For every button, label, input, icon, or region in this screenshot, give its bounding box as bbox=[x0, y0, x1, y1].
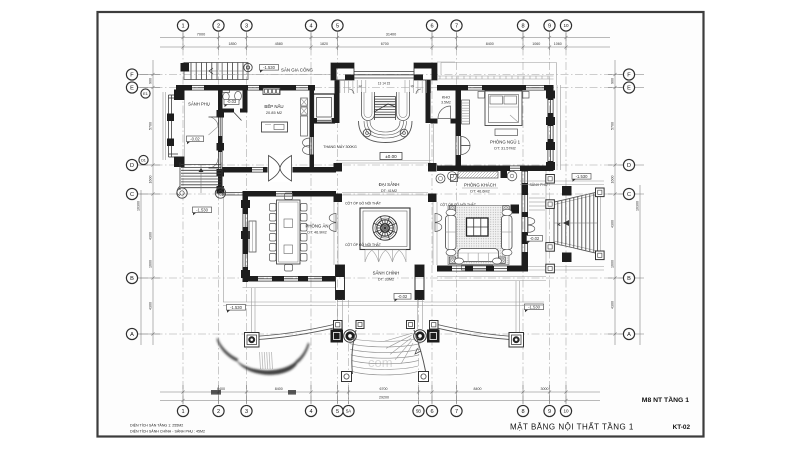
svg-text:PHÒNG NGỦ 1: PHÒNG NGỦ 1 bbox=[490, 140, 521, 145]
svg-text:1850: 1850 bbox=[229, 42, 237, 46]
svg-text:PHÒNG ĂN: PHÒNG ĂN bbox=[306, 224, 329, 229]
svg-text:3.5M2: 3.5M2 bbox=[441, 101, 451, 105]
svg-text:900: 900 bbox=[610, 78, 614, 84]
svg-text:1820: 1820 bbox=[320, 42, 328, 46]
svg-text:8: 8 bbox=[521, 409, 524, 415]
svg-text:1: 1 bbox=[181, 24, 184, 30]
svg-text:6700: 6700 bbox=[381, 42, 389, 46]
svg-text:B: B bbox=[627, 276, 631, 282]
svg-text:12: 12 bbox=[358, 84, 362, 88]
svg-text:DT: 31.57M2: DT: 31.57M2 bbox=[494, 147, 516, 151]
svg-text:4300: 4300 bbox=[610, 220, 614, 228]
svg-text:±0.00: ±0.00 bbox=[385, 154, 397, 159]
svg-text:-1.530: -1.530 bbox=[528, 304, 541, 309]
svg-text:MẶT BẰNG NỘI THẤT TẦNG 1: MẶT BẰNG NỘI THẤT TẦNG 1 bbox=[510, 422, 634, 432]
svg-text:D: D bbox=[130, 163, 134, 169]
svg-text:D: D bbox=[627, 163, 631, 169]
svg-text:900: 900 bbox=[148, 78, 152, 84]
svg-text:16300: 16300 bbox=[635, 201, 639, 211]
svg-text:B: B bbox=[130, 276, 134, 282]
svg-text:16: 16 bbox=[410, 84, 414, 88]
svg-text:SẢNH CHÍNH: SẢNH CHÍNH bbox=[373, 271, 400, 276]
svg-text:-0.02: -0.02 bbox=[398, 294, 408, 299]
svg-text:KT-02: KT-02 bbox=[673, 424, 691, 431]
svg-text:13 14 15: 13 14 15 bbox=[378, 82, 391, 86]
svg-text:7: 7 bbox=[455, 409, 458, 415]
svg-text:ĐẠI SẢNH: ĐẠI SẢNH bbox=[379, 182, 400, 187]
svg-text:DT: 46.9M2: DT: 46.9M2 bbox=[307, 231, 326, 235]
svg-text:3: 3 bbox=[245, 24, 248, 30]
svg-text:-1.530: -1.530 bbox=[230, 305, 243, 310]
svg-text:6: 6 bbox=[430, 24, 433, 30]
svg-text:1600: 1600 bbox=[610, 176, 614, 184]
svg-text:4300: 4300 bbox=[148, 302, 152, 310]
svg-text:DT: 46.6M2: DT: 46.6M2 bbox=[470, 190, 489, 194]
svg-text:-1.530: -1.530 bbox=[263, 65, 276, 70]
svg-text:K: K bbox=[557, 222, 561, 228]
svg-text:10: 10 bbox=[563, 23, 569, 28]
svg-text:F: F bbox=[130, 73, 134, 79]
svg-text:THANG MÁY 300KG: THANG MÁY 300KG bbox=[323, 145, 357, 149]
svg-text:5: 5 bbox=[336, 409, 339, 415]
svg-text:com: com bbox=[368, 355, 393, 370]
svg-text:5700: 5700 bbox=[148, 122, 152, 130]
svg-text:20.85 M2: 20.85 M2 bbox=[266, 110, 282, 115]
svg-text:C: C bbox=[130, 192, 134, 198]
svg-text:1600: 1600 bbox=[610, 260, 614, 268]
svg-text:31400: 31400 bbox=[386, 33, 397, 37]
svg-text:SẢNH PHỤ: SẢNH PHỤ bbox=[188, 102, 210, 107]
svg-text:6: 6 bbox=[430, 409, 433, 415]
svg-text:CỘT ỐP GỖ NỘI THẤT: CỘT ỐP GỖ NỘI THẤT bbox=[345, 201, 381, 206]
svg-text:8400: 8400 bbox=[486, 42, 494, 46]
svg-text:A: A bbox=[627, 332, 631, 338]
svg-text:7000: 7000 bbox=[197, 33, 205, 37]
svg-text:KHO: KHO bbox=[442, 96, 450, 100]
svg-text:5: 5 bbox=[336, 24, 339, 30]
svg-text:F: F bbox=[627, 73, 631, 79]
svg-text:E1: E1 bbox=[143, 92, 148, 96]
svg-text:PHÒNG KHÁCH: PHÒNG KHÁCH bbox=[464, 183, 496, 188]
svg-text:-0.03: -0.03 bbox=[227, 99, 237, 104]
svg-text:1600: 1600 bbox=[148, 260, 152, 268]
svg-text:9: 9 bbox=[548, 24, 551, 30]
svg-text:E: E bbox=[130, 86, 134, 92]
svg-text:16300: 16300 bbox=[136, 201, 140, 211]
svg-text:4300: 4300 bbox=[610, 301, 614, 309]
svg-text:D1: D1 bbox=[141, 158, 146, 162]
svg-text:-0.02: -0.02 bbox=[530, 236, 540, 241]
svg-text:4300: 4300 bbox=[148, 232, 152, 240]
svg-text:5B: 5B bbox=[416, 409, 421, 414]
svg-text:-1.530: -1.530 bbox=[196, 207, 209, 212]
svg-text:4: 4 bbox=[309, 409, 312, 415]
svg-text:-0.02: -0.02 bbox=[190, 136, 200, 141]
svg-text:2: 2 bbox=[217, 24, 220, 30]
svg-text:-1.530: -1.530 bbox=[576, 174, 589, 179]
svg-text:2: 2 bbox=[217, 409, 220, 415]
svg-text:8: 8 bbox=[521, 24, 524, 30]
svg-text:4: 4 bbox=[309, 24, 312, 30]
svg-text:1060: 1060 bbox=[532, 42, 540, 46]
svg-text:9: 9 bbox=[548, 409, 551, 415]
svg-text:BẾP NẤU: BẾP NẤU bbox=[264, 104, 283, 109]
svg-text:29200: 29200 bbox=[379, 396, 389, 400]
svg-text:1: 1 bbox=[181, 409, 184, 415]
svg-text:3000: 3000 bbox=[541, 387, 549, 391]
svg-text:E: E bbox=[627, 86, 631, 92]
svg-text:8400: 8400 bbox=[474, 387, 482, 391]
svg-text:SÂN GIA CÔNG: SÂN GIA CÔNG bbox=[281, 68, 314, 73]
svg-text:5A: 5A bbox=[346, 409, 351, 414]
svg-text:C: C bbox=[627, 192, 631, 198]
svg-text:CỘT ỐP GỖ NỘI THẤT: CỘT ỐP GỖ NỘI THẤT bbox=[345, 242, 381, 247]
svg-text:7: 7 bbox=[455, 24, 458, 30]
svg-text:DIỆN TÍCH SÀN TẦNG 1: 255M2: DIỆN TÍCH SÀN TẦNG 1: 255M2 bbox=[130, 423, 183, 428]
svg-text:DIỆN TÍCH SẢNH CHÍNH - SẢNH PH: DIỆN TÍCH SẢNH CHÍNH - SẢNH PHỤ : 45M2 bbox=[130, 429, 205, 434]
svg-text:1600: 1600 bbox=[148, 176, 152, 184]
svg-text:4580: 4580 bbox=[275, 42, 283, 46]
svg-text:8400: 8400 bbox=[275, 387, 283, 391]
svg-text:6700: 6700 bbox=[380, 387, 388, 391]
svg-text:DT: 33M2: DT: 33M2 bbox=[378, 278, 394, 282]
svg-text:5700: 5700 bbox=[610, 122, 614, 130]
svg-text:10: 10 bbox=[563, 409, 569, 414]
svg-text:1060: 1060 bbox=[554, 42, 562, 46]
svg-text:3: 3 bbox=[245, 409, 248, 415]
svg-text:A: A bbox=[130, 332, 134, 338]
